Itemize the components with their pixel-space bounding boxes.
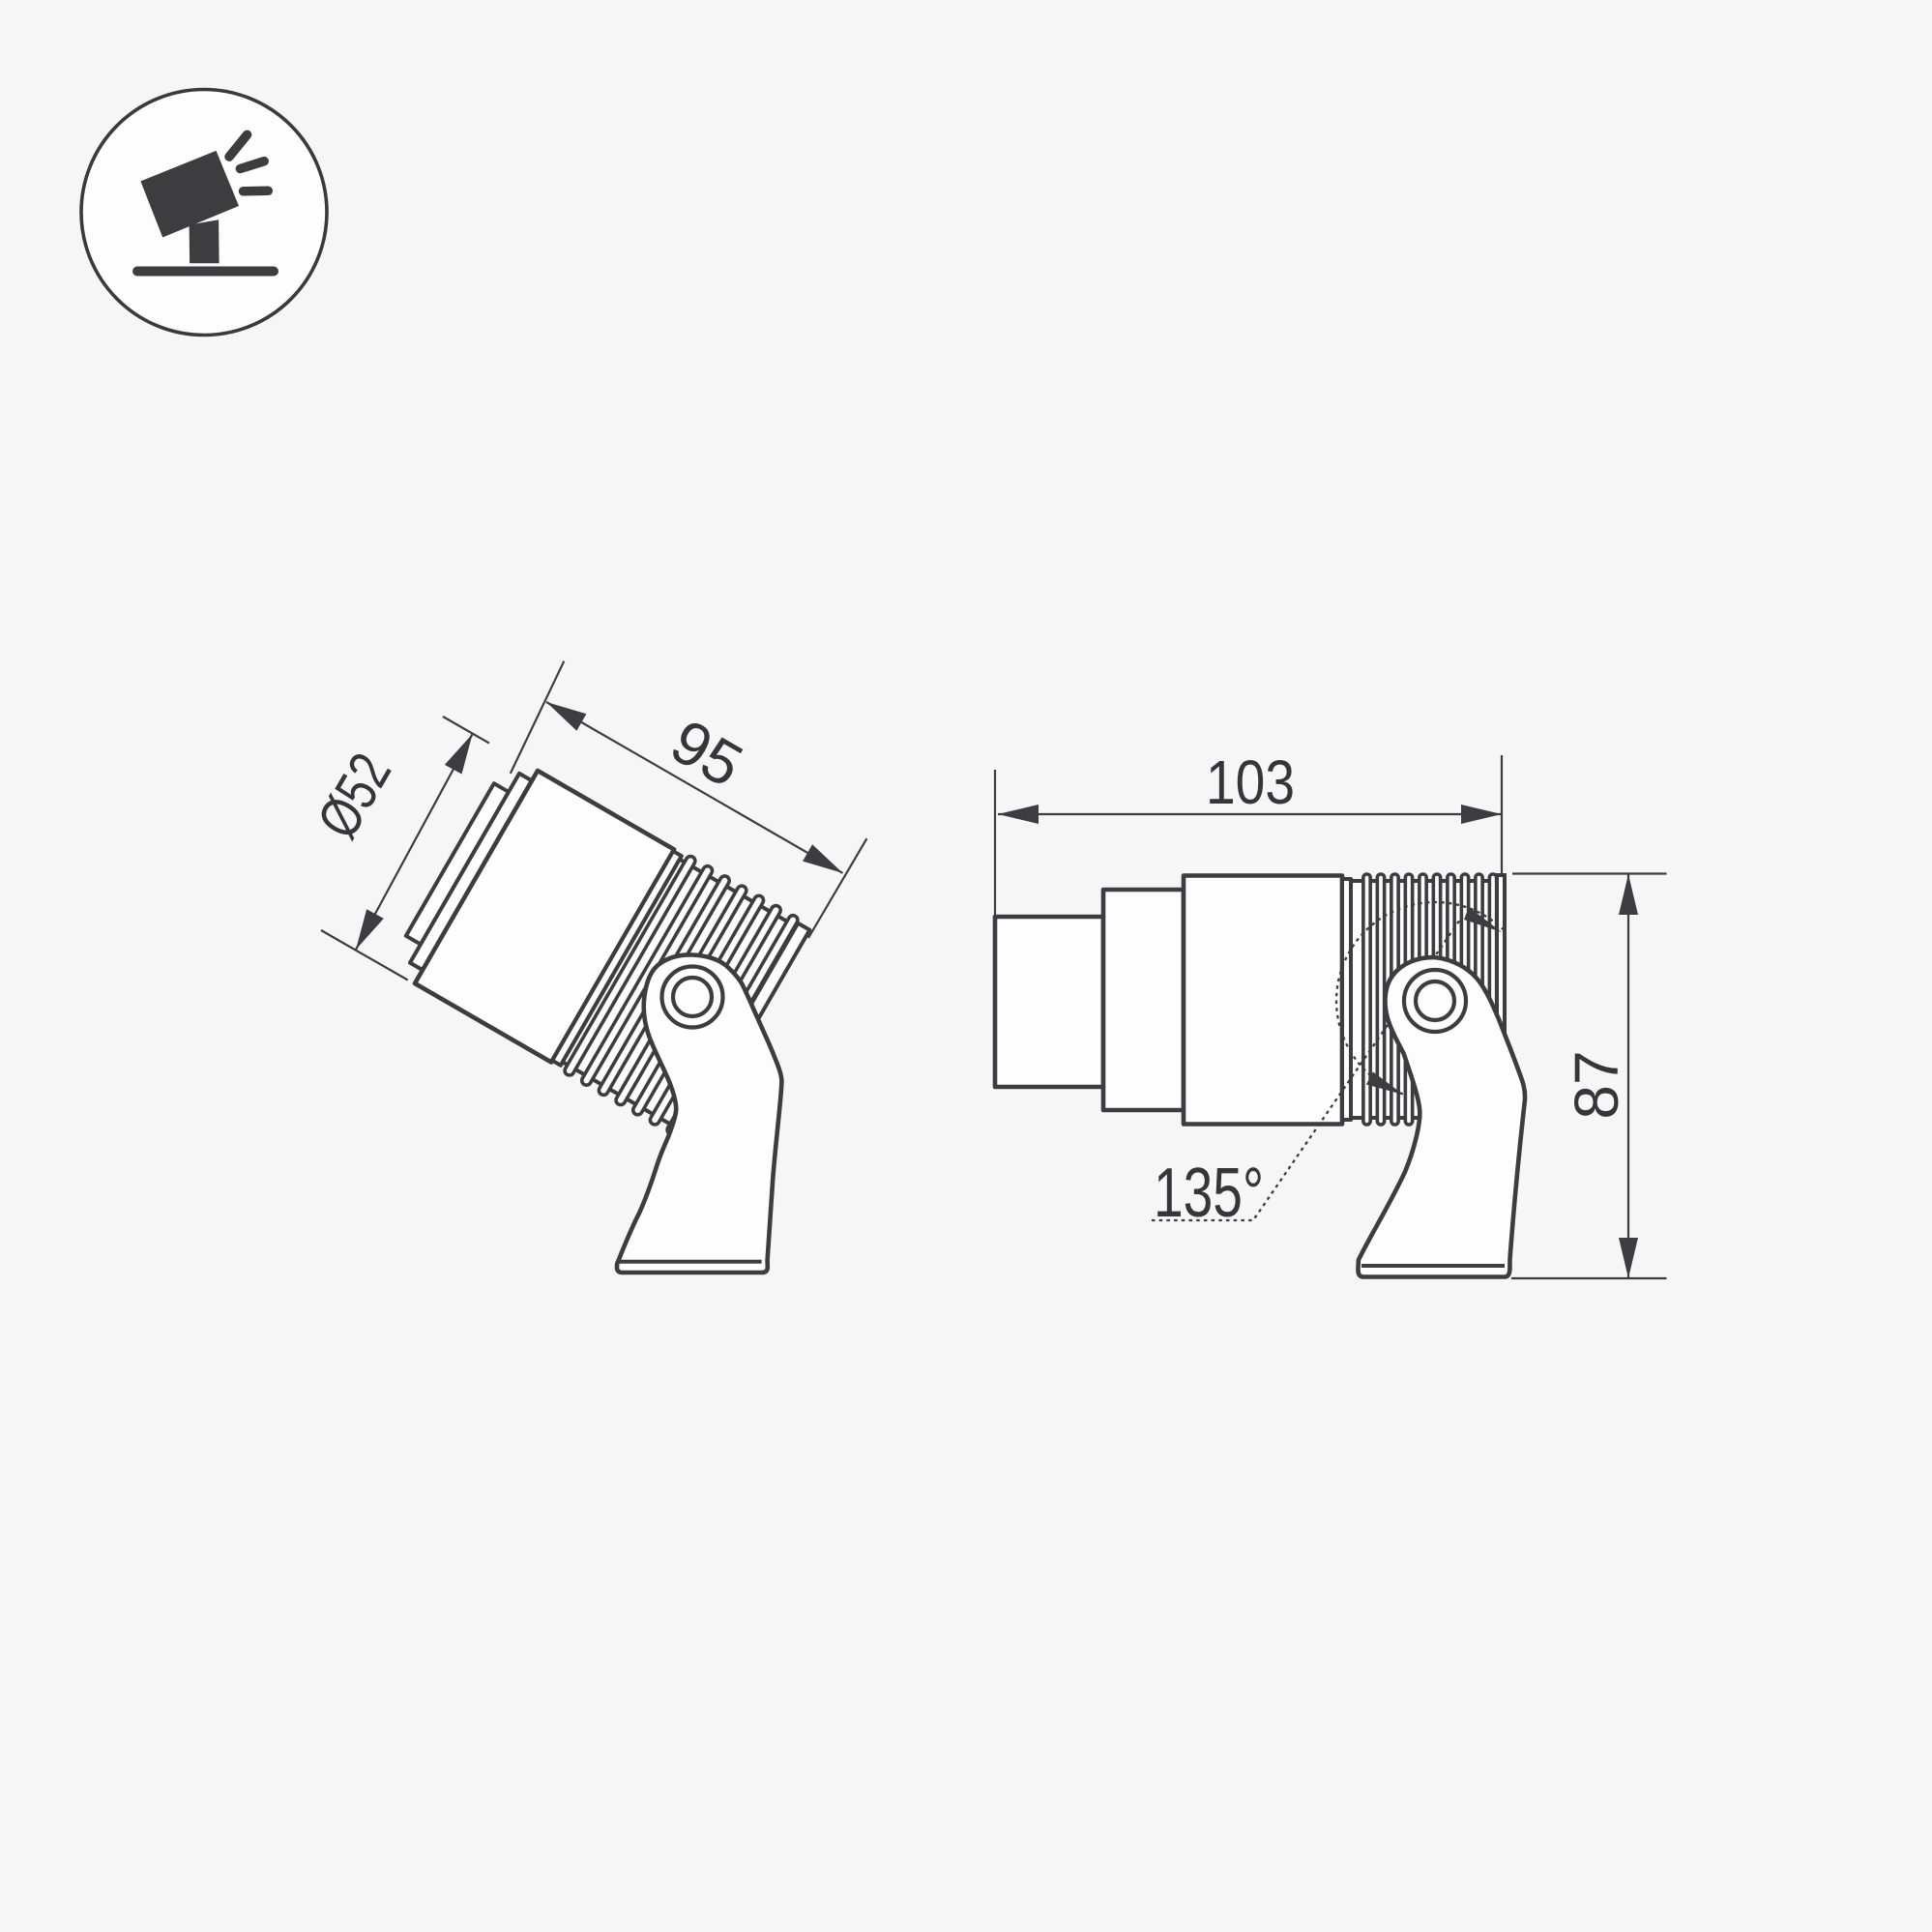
svg-text:87: 87 xyxy=(1562,1050,1631,1119)
svg-text:103: 103 xyxy=(1206,747,1295,817)
svg-text:135°: 135° xyxy=(1154,1155,1264,1232)
